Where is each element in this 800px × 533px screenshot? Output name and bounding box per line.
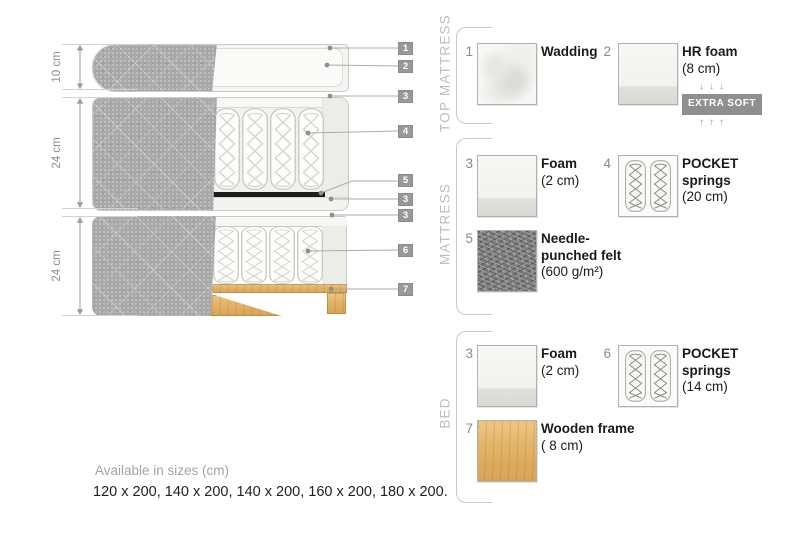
legend-item-detail: (600 g/m²) [541,264,625,281]
top-mattress-diagram [92,44,349,92]
mattress-felt-layer [213,192,325,197]
dimension-top-mattress: 10 cm [51,51,63,82]
legend-item-text: Wadding [541,44,625,61]
legend-item-detail: ( 8 cm) [541,438,671,455]
legend-item-text: Wooden frame ( 8 cm) [541,421,671,454]
callout-1: 1 [398,42,413,55]
legend-item-detail: (20 cm) [682,189,766,206]
legend-item-text: Foam (2 cm) [541,346,625,379]
bed-construction-infographic: 10 cm 24 cm 24 cm 1 2 3 4 5 3 3 6 7 TOP … [0,0,800,533]
legend-item-text: Foam (2 cm) [541,156,625,189]
legend-item-name: POCKET springs [682,346,766,379]
legend-item-name: Foam [541,346,625,363]
callout-3-top: 3 [398,90,413,103]
legend-item-text: Needle-punched felt (600 g/m²) [541,231,625,281]
legend-item-detail: (8 cm) [682,61,766,78]
legend-item-number: 7 [457,421,473,436]
available-sizes-list: 120 x 200, 140 x 200, 140 x 200, 160 x 2… [93,484,448,500]
extra-soft-badge: EXTRA SOFT [682,94,762,115]
pocket-springs-swatch [618,345,678,407]
legend-item-name: Wooden frame [541,421,671,438]
legend-item-text: POCKET springs (20 cm) [682,156,766,206]
legend-item-detail: (2 cm) [541,173,625,190]
legend-item-number: 5 [457,231,473,246]
legend-item-name: Wadding [541,44,625,61]
callout-5: 5 [398,174,413,187]
springs-illustration [619,156,677,216]
legend-item-name: Foam [541,156,625,173]
legend-item-detail: (2 cm) [541,363,625,380]
bed-pocket-springs [213,226,323,284]
bed-side-panel [322,226,347,284]
callout-6: 6 [398,244,413,257]
legend-item-text: POCKET springs (14 cm) [682,346,766,396]
legend-item-name: Needle-punched felt [541,231,625,264]
bed-fabric-cover [92,216,216,316]
foam-swatch [477,155,537,217]
section-title-top-mattress: TOP MATTRESS [438,14,453,132]
callout-7: 7 [398,283,413,296]
available-sizes-title: Available in sizes (cm) [95,463,229,478]
callout-4: 4 [398,125,413,138]
bed-wooden-rail [204,284,347,293]
legend-item-number: 4 [595,156,611,171]
mattress-pocket-springs [214,108,324,190]
top-mattress-fabric-cover [92,44,217,92]
foam-swatch [477,345,537,407]
legend-item-number: 3 [457,346,473,361]
bed-wooden-slat [204,295,292,316]
arrows-down-icon: ↓↓↓ [682,81,746,93]
pocket-springs-swatch [618,155,678,217]
legend-item-name: HR foam [682,44,766,61]
dimension-mattress: 24 cm [51,137,63,168]
legend-section-bed: BED 3 Foam (2 cm) 6 POCKET springs (14 c… [437,325,792,505]
legend-item-name: POCKET springs [682,156,766,189]
hr-foam-swatch [618,43,678,105]
mattress-side-panel [322,98,348,210]
legend-item-number: 1 [457,44,473,59]
callout-2: 2 [398,60,413,73]
legend-item-detail: (14 cm) [682,379,766,396]
section-title-bed: BED [438,397,453,428]
callout-3-bed: 3 [398,209,413,222]
legend-section-mattress: MATTRESS 3 Foam (2 cm) 4 POCKET springs … [437,132,792,317]
wooden-frame-swatch [477,420,537,482]
legend-item-text: HR foam (8 cm) ↓↓↓ EXTRA SOFT ↑↑↑ [682,44,766,129]
legend-item-number: 3 [457,156,473,171]
wadding-swatch [477,43,537,105]
springs-illustration [619,346,677,406]
section-title-mattress: MATTRESS [438,183,453,265]
mattress-fabric-cover [92,97,217,211]
callout-3-mid: 3 [398,193,413,206]
legend-item-number: 6 [595,346,611,361]
bed-base-diagram [92,216,347,316]
arrows-up-icon: ↑↑↑ [682,117,746,129]
bed-wooden-leg [327,293,346,314]
legend-section-top-mattress: TOP MATTRESS 1 Wadding 2 HR foam (8 cm) … [437,20,792,125]
dimension-bed: 24 cm [51,250,63,281]
mattress-diagram [92,97,349,211]
legend-item-number: 2 [595,44,611,59]
needle-punched-felt-swatch [477,230,537,292]
